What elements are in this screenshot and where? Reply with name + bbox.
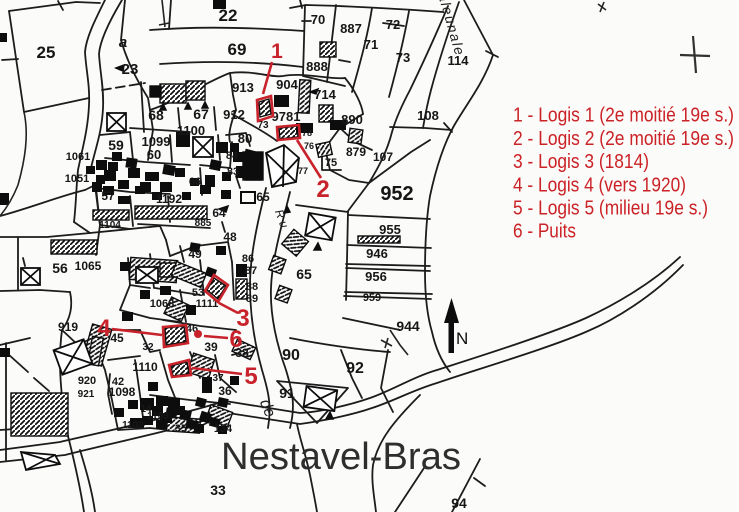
svg-text:904: 904 <box>276 77 298 92</box>
svg-text:76: 76 <box>304 141 314 151</box>
svg-text:919: 919 <box>58 320 78 334</box>
svg-text:64: 64 <box>212 206 226 220</box>
svg-text:6: 6 <box>229 326 242 353</box>
svg-text:6 - Puits: 6 - Puits <box>513 221 576 243</box>
svg-text:879: 879 <box>346 145 366 159</box>
svg-text:134: 134 <box>214 423 233 435</box>
svg-text:77: 77 <box>298 166 308 176</box>
svg-text:49: 49 <box>188 247 202 261</box>
svg-text:952: 952 <box>380 183 413 205</box>
svg-text:48: 48 <box>223 230 237 244</box>
svg-text:1051: 1051 <box>65 173 89 185</box>
svg-text:108: 108 <box>417 108 439 123</box>
svg-text:955: 955 <box>379 222 401 237</box>
svg-text:890: 890 <box>341 112 363 127</box>
svg-text:1065: 1065 <box>75 259 102 273</box>
svg-text:1104: 1104 <box>99 220 121 231</box>
svg-text:920: 920 <box>78 375 96 387</box>
svg-text:4 - Logis 4 (vers 1920): 4 - Logis 4 (vers 1920) <box>513 175 686 197</box>
svg-text:Nestavel-Bras: Nestavel-Bras <box>221 436 461 478</box>
svg-text:80: 80 <box>238 131 252 146</box>
svg-text:83: 83 <box>227 166 239 178</box>
svg-text:1068: 1068 <box>150 298 174 310</box>
svg-text:22: 22 <box>219 6 238 25</box>
svg-text:107: 107 <box>373 150 393 164</box>
svg-text:92: 92 <box>346 360 364 377</box>
svg-text:959: 959 <box>363 292 381 304</box>
svg-text:57: 57 <box>101 189 115 203</box>
svg-text:32: 32 <box>142 342 154 353</box>
svg-text:35: 35 <box>175 423 187 435</box>
svg-text:888: 888 <box>306 59 328 74</box>
svg-text:39: 39 <box>204 340 218 354</box>
svg-text:78: 78 <box>302 128 312 138</box>
svg-text:2 - Logis 2 (2e moitié 19e s.): 2 - Logis 2 (2e moitié 19e s.) <box>513 128 734 150</box>
svg-text:956: 956 <box>365 269 387 284</box>
svg-text:84: 84 <box>226 150 239 162</box>
svg-text:88: 88 <box>246 281 258 293</box>
svg-text:2: 2 <box>316 176 329 203</box>
svg-text:3 - Logis 3 (1814): 3 - Logis 3 (1814) <box>513 151 649 173</box>
svg-text:5 - Logis 5 (milieu 19e s.): 5 - Logis 5 (milieu 19e s.) <box>513 198 708 220</box>
svg-text:887: 887 <box>340 21 362 36</box>
svg-text:87: 87 <box>245 265 257 277</box>
svg-text:4: 4 <box>97 315 111 342</box>
svg-text:1102: 1102 <box>122 420 144 431</box>
svg-text:23: 23 <box>122 61 139 78</box>
svg-text:37: 37 <box>212 373 224 384</box>
svg-text:94: 94 <box>451 495 467 511</box>
svg-text:56: 56 <box>52 260 68 276</box>
svg-text:912: 912 <box>223 107 245 122</box>
svg-text:1192: 1192 <box>156 192 182 206</box>
svg-text:72: 72 <box>386 17 400 32</box>
svg-text:25: 25 <box>37 43 56 62</box>
svg-text:714: 714 <box>314 87 336 102</box>
svg-text:9781: 9781 <box>272 109 301 124</box>
svg-text:90: 90 <box>282 347 300 364</box>
svg-text:33: 33 <box>210 482 226 498</box>
svg-text:65: 65 <box>256 190 270 204</box>
svg-text:59: 59 <box>108 137 124 153</box>
svg-text:89: 89 <box>246 293 258 305</box>
svg-text:60: 60 <box>147 147 161 162</box>
svg-text:N: N <box>456 329 468 348</box>
svg-text:1109: 1109 <box>147 411 169 422</box>
svg-text:86: 86 <box>242 253 254 265</box>
svg-text:69: 69 <box>228 40 247 59</box>
svg-text:1: 1 <box>271 40 283 63</box>
svg-text:70: 70 <box>311 12 325 27</box>
svg-text:75: 75 <box>325 157 337 169</box>
svg-text:921: 921 <box>78 389 95 400</box>
svg-text:91: 91 <box>279 385 295 401</box>
svg-text:1 - Logis 1 (2e moitié 19e s.): 1 - Logis 1 (2e moitié 19e s.) <box>513 105 734 127</box>
svg-text:1100: 1100 <box>177 123 205 138</box>
svg-text:53: 53 <box>192 287 204 299</box>
svg-text:885: 885 <box>195 218 212 229</box>
svg-text:5: 5 <box>244 363 257 390</box>
svg-text:913: 913 <box>232 80 254 95</box>
svg-text:66: 66 <box>189 176 201 188</box>
svg-text:1110: 1110 <box>132 360 158 374</box>
svg-text:71: 71 <box>364 37 378 52</box>
svg-text:45: 45 <box>110 331 124 345</box>
svg-text:946: 946 <box>366 246 388 261</box>
svg-text:67: 67 <box>193 106 209 122</box>
svg-text:73: 73 <box>396 50 410 65</box>
svg-text:36: 36 <box>218 384 232 398</box>
svg-text:1061: 1061 <box>66 151 90 163</box>
svg-text:1098: 1098 <box>109 385 136 399</box>
svg-text:68: 68 <box>148 107 164 123</box>
svg-text:a: a <box>119 34 127 51</box>
svg-text:65: 65 <box>296 266 312 282</box>
svg-text:944: 944 <box>396 318 420 334</box>
